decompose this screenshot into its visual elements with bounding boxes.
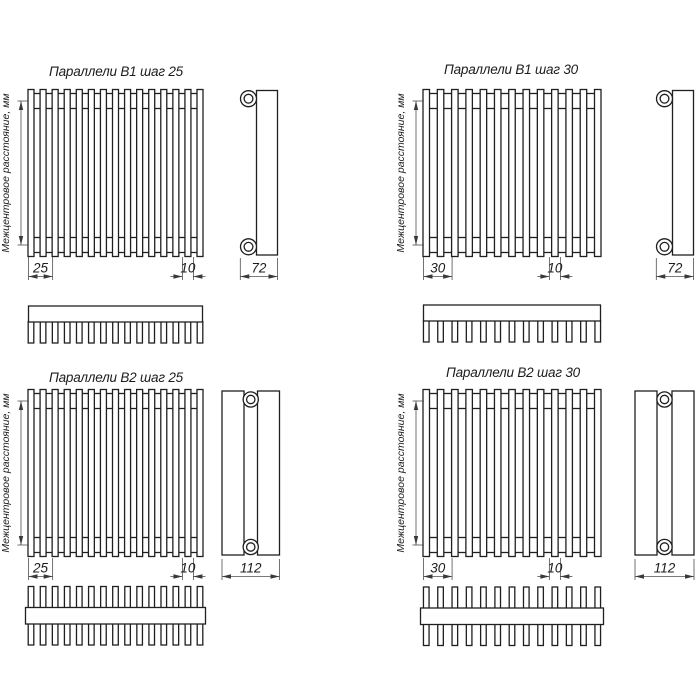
dimension-arrow — [19, 236, 23, 245]
tube — [480, 390, 487, 557]
top-view — [421, 587, 604, 646]
variant-b1-step-25: Параллели В1 шаг 25Межцентровое расстоян… — [0, 64, 278, 343]
tube — [64, 90, 70, 257]
tube-section-top — [101, 587, 107, 609]
pitch-dimension: 25 — [29, 257, 53, 280]
pitch-dimension: 25 — [29, 558, 53, 580]
tube-section-bottom — [76, 624, 82, 646]
tube — [185, 390, 191, 557]
tube-section-top — [125, 587, 131, 609]
tube-section-top — [40, 587, 46, 609]
center-distance-label: Межцентровое расстояние, мм — [395, 93, 407, 252]
tube-section — [137, 322, 143, 344]
tube-section-bottom — [481, 624, 487, 646]
inlet-bottom-inner-circle — [247, 543, 255, 551]
tube-section — [423, 321, 429, 343]
tube-section — [64, 322, 70, 344]
tube-section — [113, 322, 119, 344]
tube-section-bottom — [552, 624, 558, 646]
tube-section-top — [423, 587, 429, 609]
dimension-arrow — [19, 101, 23, 110]
dimension-arrow — [635, 574, 644, 578]
top-view — [26, 587, 206, 646]
tube-section-top — [76, 587, 82, 609]
tube-section-top — [161, 587, 167, 609]
tube — [197, 390, 203, 557]
tube-section — [52, 322, 58, 344]
tube — [566, 90, 573, 257]
tube — [76, 90, 82, 257]
dimension-arrow — [222, 574, 231, 578]
variant-b1-step-30: Параллели В1 шаг 30Межцентровое расстоян… — [395, 62, 694, 342]
tube — [185, 90, 191, 257]
tube-section-top — [466, 587, 472, 609]
depth-dimension: 72 — [656, 258, 693, 280]
pitch-dimension: 30 — [424, 257, 453, 280]
center-distance-dimension: Межцентровое расстояние, мм — [0, 93, 29, 252]
tube-section-top — [137, 587, 143, 609]
tube — [466, 90, 473, 257]
tube — [595, 390, 602, 557]
pitch-dim-label: 30 — [430, 561, 446, 576]
tube — [149, 90, 155, 257]
tube-section-bottom — [197, 624, 203, 646]
center-distance-dimension: Межцентровое расстояние, мм — [395, 93, 424, 252]
tube — [523, 390, 530, 557]
radiator-drawing-canvas: Параллели В1 шаг 25Межцентровое расстоян… — [0, 0, 700, 700]
pitch-dim-label: 25 — [32, 561, 49, 576]
tube — [423, 90, 430, 257]
tube-section — [101, 322, 107, 344]
tube-width-dim-label: 10 — [180, 561, 196, 576]
tube — [88, 90, 94, 257]
tube-width-dimension: 10 — [170, 257, 205, 280]
tube-section — [89, 322, 95, 344]
tube — [28, 90, 34, 257]
front-view — [423, 390, 601, 557]
dimension-arrow — [414, 536, 418, 545]
center-distance-dimension: Межцентровое расстояние, мм — [395, 393, 424, 552]
dimension-arrow — [414, 101, 418, 110]
tube-section — [149, 322, 155, 344]
tube — [523, 90, 530, 257]
dimension-arrow — [240, 274, 249, 278]
dimension-arrow — [685, 274, 694, 278]
tube-width-dimension: 10 — [537, 257, 572, 280]
center-distance-label: Межцентровое расстояние, мм — [0, 393, 12, 552]
inlet-bottom-inner-circle — [660, 242, 669, 251]
tube — [100, 390, 106, 557]
depth-dim-label: 112 — [654, 561, 676, 576]
tube — [125, 90, 131, 257]
depth-dim-label: 72 — [251, 261, 267, 276]
tube-section-bottom — [64, 624, 70, 646]
tube-section — [552, 321, 558, 343]
tube-section-bottom — [438, 624, 444, 646]
tube-section-top — [197, 587, 203, 609]
center-distance-dimension: Межцентровое расстояние, мм — [0, 393, 29, 552]
dimension-arrow — [19, 536, 23, 545]
tube-section — [566, 321, 572, 343]
tube-section — [40, 322, 46, 344]
top-view — [423, 305, 600, 342]
tube — [173, 390, 179, 557]
tube-section-top — [481, 587, 487, 609]
variant-title: Параллели В1 шаг 25 — [49, 64, 184, 79]
tube-section-top — [52, 587, 58, 609]
tube-section-top — [523, 587, 529, 609]
tube-section — [481, 321, 487, 343]
tube-section-bottom — [466, 624, 472, 646]
tube — [509, 90, 516, 257]
tube-width-dimension: 10 — [537, 558, 572, 580]
dimension-arrow — [19, 401, 23, 410]
tube — [423, 390, 430, 557]
tube-section — [197, 322, 203, 344]
tube — [28, 390, 34, 557]
tube-section-top — [28, 587, 34, 609]
side-view — [222, 391, 280, 555]
tube — [537, 90, 544, 257]
tube-section-bottom — [523, 624, 529, 646]
tube-section-top — [89, 587, 95, 609]
tube-width-dimension: 10 — [170, 558, 205, 580]
tube — [566, 390, 573, 557]
tube-section-bottom — [28, 624, 34, 646]
tube — [580, 90, 587, 257]
tube-section-top — [452, 587, 458, 609]
side-view — [241, 91, 278, 256]
tube-section-bottom — [101, 624, 107, 646]
side-view — [657, 91, 694, 256]
pitch-dim-label: 25 — [32, 261, 49, 276]
tube-section-top — [595, 587, 601, 609]
tube-section-bottom — [595, 624, 601, 646]
dimension-arrow — [414, 236, 418, 245]
tube — [494, 390, 501, 557]
tube — [452, 90, 459, 257]
tube-width-dim-label: 10 — [547, 261, 563, 276]
side-body-front-row — [635, 391, 657, 555]
tube — [437, 390, 444, 557]
tube-section — [466, 321, 472, 343]
tube — [88, 390, 94, 557]
tube-section-bottom — [452, 624, 458, 646]
side-body-back-row — [672, 391, 694, 555]
tube-section-top — [538, 587, 544, 609]
header-section — [29, 306, 203, 322]
tube — [149, 390, 155, 557]
tube-section-bottom — [149, 624, 155, 646]
tube — [173, 90, 179, 257]
tube-section-top — [113, 587, 119, 609]
tube-section-top — [64, 587, 70, 609]
tube — [40, 390, 46, 557]
front-view — [28, 390, 203, 557]
front-view — [28, 90, 203, 257]
tube-section — [76, 322, 82, 344]
tube-section-bottom — [125, 624, 131, 646]
tube — [452, 390, 459, 557]
tube-section-top — [438, 587, 444, 609]
inlet-top-inner-circle — [660, 94, 669, 103]
tube — [113, 390, 119, 557]
tube — [437, 90, 444, 257]
header-section — [26, 608, 206, 625]
tube-section-bottom — [89, 624, 95, 646]
tube-section — [173, 322, 179, 344]
tube-section-top — [185, 587, 191, 609]
center-distance-label: Межцентровое расстояние, мм — [0, 93, 12, 252]
tube-section — [523, 321, 529, 343]
tube — [537, 390, 544, 557]
front-view — [423, 90, 601, 257]
tube-section — [509, 321, 515, 343]
tube-section-top — [509, 587, 515, 609]
dimension-arrow — [269, 274, 278, 278]
tube-section-top — [581, 587, 587, 609]
tube-section — [438, 321, 444, 343]
tube-section-bottom — [173, 624, 179, 646]
tube — [161, 90, 167, 257]
depth-dim-label: 72 — [667, 261, 683, 276]
header-section — [421, 608, 604, 625]
header-section — [424, 305, 601, 321]
tube — [161, 390, 167, 557]
tube — [52, 90, 58, 257]
technical-drawing-page: Параллели В1 шаг 25Межцентровое расстоян… — [0, 0, 700, 700]
pitch-dim-label: 30 — [430, 261, 446, 276]
inlet-top-inner-circle — [244, 94, 253, 103]
tube — [552, 90, 559, 257]
variant-title: Параллели В1 шаг 30 — [444, 62, 579, 77]
tube-section-bottom — [538, 624, 544, 646]
tube-section-top — [149, 587, 155, 609]
depth-dimension: 112 — [222, 559, 280, 580]
tube — [113, 90, 119, 257]
tube — [52, 390, 58, 557]
tube — [76, 390, 82, 557]
tube-width-dim-label: 10 — [547, 561, 563, 576]
tube-section-top — [173, 587, 179, 609]
side-body-front-row — [222, 391, 244, 555]
inlet-top-inner-circle — [660, 395, 668, 403]
tube-section — [125, 322, 131, 344]
tube-section-bottom — [423, 624, 429, 646]
tube — [64, 390, 70, 557]
tube-section-bottom — [40, 624, 46, 646]
tube — [509, 390, 516, 557]
side-body — [673, 91, 694, 256]
tube-section-bottom — [52, 624, 58, 646]
tube-section — [185, 322, 191, 344]
tube-section-top — [495, 587, 501, 609]
inlet-bottom-inner-circle — [660, 543, 668, 551]
tube-section-bottom — [566, 624, 572, 646]
tube-section-bottom — [113, 624, 119, 646]
tube — [494, 90, 501, 257]
tube-section — [452, 321, 458, 343]
variant-title: Параллели В2 шаг 25 — [49, 370, 184, 385]
tube-section-bottom — [185, 624, 191, 646]
tube — [40, 90, 46, 257]
tube — [137, 90, 143, 257]
center-distance-label: Межцентровое расстояние, мм — [395, 393, 407, 552]
tube-section — [595, 321, 601, 343]
tube-section-top — [552, 587, 558, 609]
tube — [125, 390, 131, 557]
tube-section — [538, 321, 544, 343]
inlet-bottom-inner-circle — [244, 242, 253, 251]
tube-width-dim-label: 10 — [180, 261, 196, 276]
tube-section-bottom — [495, 624, 501, 646]
dimension-arrow — [656, 274, 665, 278]
tube-section-bottom — [161, 624, 167, 646]
tube-section-bottom — [509, 624, 515, 646]
tube-section-bottom — [581, 624, 587, 646]
tube — [137, 390, 143, 557]
tube-section — [28, 322, 34, 344]
side-view — [635, 391, 694, 555]
depth-dim-label: 112 — [240, 561, 262, 576]
tube — [100, 90, 106, 257]
tube-section — [161, 322, 167, 344]
tube-section — [495, 321, 501, 343]
side-body-back-row — [258, 391, 280, 555]
side-body — [257, 91, 278, 256]
tube — [552, 390, 559, 557]
variant-b2-step-25: Параллели В2 шаг 25Межцентровое расстоян… — [0, 370, 280, 645]
depth-dimension: 72 — [240, 258, 277, 280]
tube — [580, 390, 587, 557]
tube — [197, 90, 203, 257]
tube — [466, 390, 473, 557]
pitch-dimension: 30 — [424, 558, 453, 580]
tube-section — [581, 321, 587, 343]
tube — [595, 90, 602, 257]
dimension-arrow — [271, 574, 280, 578]
top-view — [28, 306, 203, 343]
inlet-top-inner-circle — [247, 395, 255, 403]
tube-section-top — [566, 587, 572, 609]
dimension-arrow — [414, 401, 418, 410]
variant-title: Параллели В2 шаг 30 — [446, 365, 581, 380]
variant-b2-step-30: Параллели В2 шаг 30Межцентровое расстоян… — [395, 365, 694, 646]
depth-dimension: 112 — [635, 559, 694, 580]
tube-section-bottom — [137, 624, 143, 646]
tube — [480, 90, 487, 257]
dimension-arrow — [685, 574, 694, 578]
